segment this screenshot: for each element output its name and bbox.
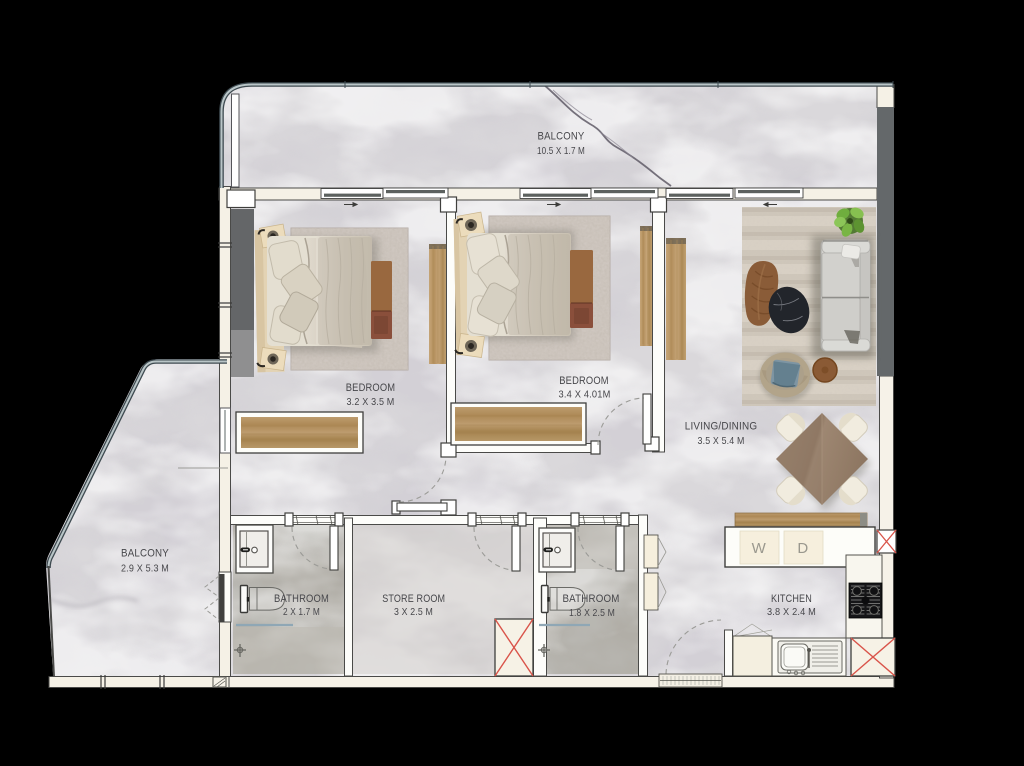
svg-text:BEDROOM: BEDROOM xyxy=(346,382,396,394)
svg-text:3.5 X 5.4 M: 3.5 X 5.4 M xyxy=(698,436,745,447)
svg-text:LIVING/DINING: LIVING/DINING xyxy=(685,421,758,433)
svg-text:D: D xyxy=(797,540,808,557)
svg-text:3.4 X 4.01M: 3.4 X 4.01M xyxy=(559,390,611,401)
svg-text:BALCONY: BALCONY xyxy=(538,131,585,143)
svg-text:KITCHEN: KITCHEN xyxy=(771,593,812,605)
svg-text:BATHROOM: BATHROOM xyxy=(274,593,329,605)
svg-text:10.5 X 1.7 M: 10.5 X 1.7 M xyxy=(537,146,585,157)
svg-text:W: W xyxy=(752,540,767,557)
svg-text:3.2 X 3.5 M: 3.2 X 3.5 M xyxy=(347,397,395,408)
svg-text:BATHROOM: BATHROOM xyxy=(563,593,620,605)
svg-text:3 X 2.5 M: 3 X 2.5 M xyxy=(394,607,433,618)
svg-text:BALCONY: BALCONY xyxy=(121,548,169,560)
svg-text:2.9 X 5.3 M: 2.9 X 5.3 M xyxy=(121,564,169,575)
svg-text:3.8 X 2.4 M: 3.8 X 2.4 M xyxy=(767,607,816,618)
svg-text:2 X 1.7 M: 2 X 1.7 M xyxy=(283,607,320,618)
svg-text:1.8 X 2.5 M: 1.8 X 2.5 M xyxy=(569,608,615,619)
svg-text:BEDROOM: BEDROOM xyxy=(559,375,609,387)
svg-text:STORE ROOM: STORE ROOM xyxy=(382,593,445,605)
